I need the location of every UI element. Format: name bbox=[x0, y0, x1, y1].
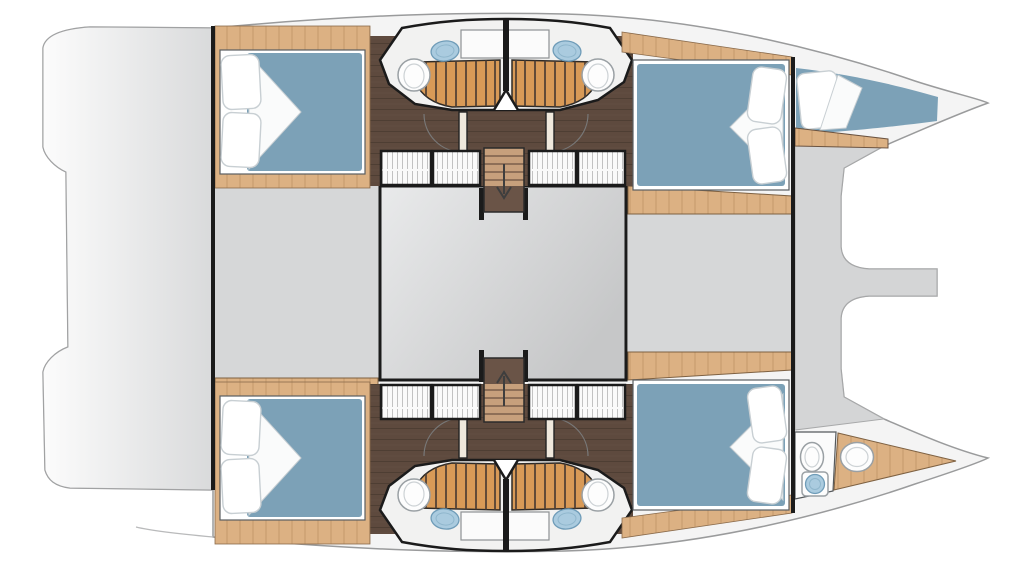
wardrobe bbox=[529, 385, 576, 419]
floor-plan-canvas bbox=[0, 0, 1024, 570]
wardrobe bbox=[529, 151, 576, 185]
forward-bulkhead bbox=[791, 57, 795, 513]
pillow bbox=[221, 112, 262, 168]
pillow bbox=[746, 446, 787, 505]
forward-deck bbox=[628, 186, 792, 380]
forward-beam-structure bbox=[795, 136, 937, 430]
aft-cabin bbox=[215, 26, 370, 188]
bathroom-divider-wall bbox=[503, 19, 509, 91]
wardrobe bbox=[578, 385, 625, 419]
pillow bbox=[746, 126, 787, 185]
wardrobe bbox=[381, 385, 431, 419]
saloon-footprint bbox=[380, 186, 626, 382]
sink bbox=[806, 475, 825, 494]
aft-deck bbox=[215, 157, 380, 404]
wardrobe bbox=[433, 385, 480, 419]
pillow bbox=[221, 54, 262, 110]
pillow bbox=[221, 458, 262, 514]
forward-cabin bbox=[622, 380, 792, 538]
cabin-door bbox=[546, 418, 554, 458]
wardrobe bbox=[433, 151, 480, 185]
wardrobe bbox=[578, 151, 625, 185]
pillow bbox=[746, 66, 787, 125]
staircase bbox=[484, 358, 524, 422]
catamaran-floor-plan bbox=[0, 0, 1024, 570]
aft-cabin bbox=[215, 382, 370, 544]
cabin-door bbox=[459, 418, 467, 458]
pillow bbox=[221, 400, 262, 456]
cabin-door bbox=[459, 112, 467, 152]
bathroom bbox=[380, 460, 632, 551]
staircase bbox=[484, 148, 524, 212]
bathroom bbox=[380, 19, 632, 110]
forward-cabin bbox=[622, 32, 792, 190]
bathroom-divider-wall bbox=[503, 479, 509, 551]
forepeak-berth bbox=[795, 68, 938, 148]
aft-bulkhead bbox=[211, 26, 215, 490]
lower-hull bbox=[215, 358, 956, 551]
stern-hull-edge bbox=[136, 527, 213, 537]
cabin-door bbox=[546, 112, 554, 152]
pillow bbox=[746, 385, 787, 444]
stern-platform bbox=[43, 27, 213, 537]
wardrobe bbox=[381, 151, 431, 185]
